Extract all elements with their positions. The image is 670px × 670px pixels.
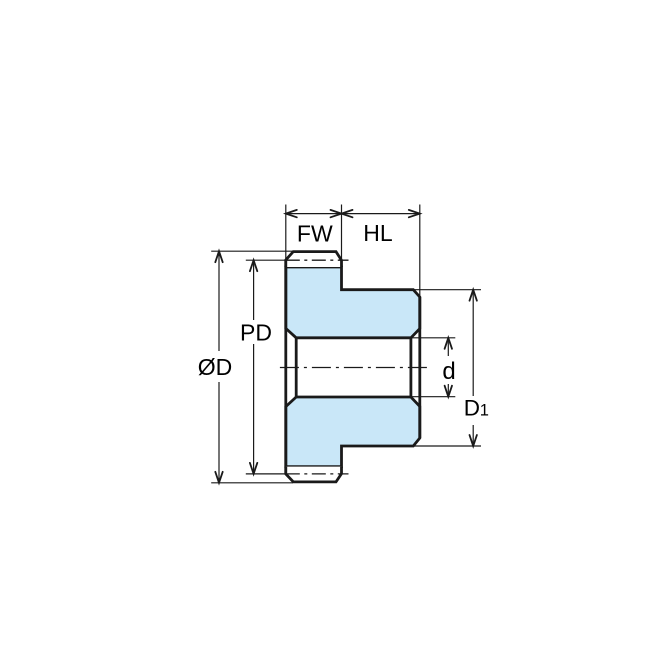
svg-text:FW: FW <box>297 221 333 247</box>
svg-text:D: D <box>464 396 480 421</box>
svg-text:ØD: ØD <box>198 354 233 380</box>
svg-text:1: 1 <box>480 402 489 420</box>
svg-text:PD: PD <box>240 320 272 346</box>
svg-text:d: d <box>442 358 455 385</box>
svg-text:HL: HL <box>363 220 393 246</box>
